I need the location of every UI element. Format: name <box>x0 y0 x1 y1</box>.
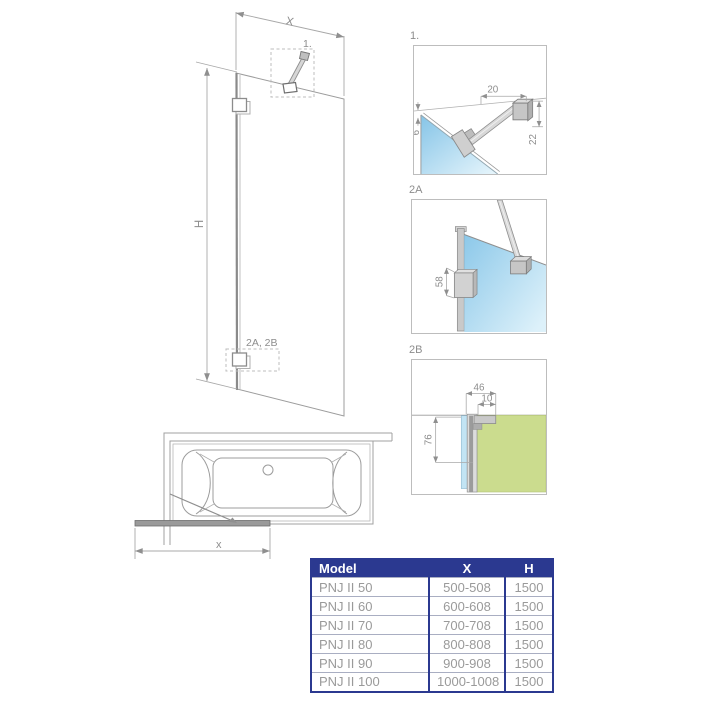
elevation-glass-panel <box>236 73 344 416</box>
plan-width-label: x <box>216 539 222 551</box>
bathtub-ledge <box>477 415 546 492</box>
model-cell: PNJ II 100 <box>311 673 429 692</box>
model-cell: PNJ II 70 <box>311 616 429 635</box>
table-row: PNJ II 100 1000-1008 1500 <box>311 673 553 692</box>
detail-2a-box: 58 <box>411 199 547 334</box>
detail-2b-box: 46 10 76 <box>411 359 547 495</box>
model-spec-table: Model X H PNJ II 50 500-508 1500 PNJ II … <box>310 558 554 693</box>
dim-76-label: 76 <box>424 434 435 445</box>
drain-icon <box>263 465 273 475</box>
dim-20-label: 20 <box>487 84 498 95</box>
h-cell: 1500 <box>505 616 553 635</box>
table-row: PNJ II 70 700-708 1500 <box>311 616 553 635</box>
support-arm <box>283 52 310 94</box>
model-cell: PNJ II 60 <box>311 597 429 616</box>
detail-2b-drawing: 46 10 76 <box>412 360 546 494</box>
detail-1-box: 20 22 6 <box>413 45 547 175</box>
dim-6-label: 6 <box>414 129 422 135</box>
dim-22-label: 22 <box>528 134 539 145</box>
x-cell: 900-908 <box>429 654 505 673</box>
column-header-x: X <box>429 559 505 578</box>
screen-panel-plan <box>135 521 270 527</box>
model-cell: PNJ II 80 <box>311 635 429 654</box>
detail-1-title: 1. <box>410 30 419 42</box>
dim-58-label: 58 <box>435 276 446 287</box>
wall-bracket <box>513 99 533 121</box>
model-cell: PNJ II 90 <box>311 654 429 673</box>
column-header-model: Model <box>311 559 429 578</box>
detail-2b-title: 2B <box>409 344 422 356</box>
x-cell: 600-608 <box>429 597 505 616</box>
detail-2-callout-label: 2A, 2B <box>246 337 278 349</box>
plan-width-dimension <box>135 528 270 559</box>
bathtub-plan-view <box>164 433 392 545</box>
detail-1-callout-label: 1. <box>303 38 312 50</box>
h-cell: 1500 <box>505 597 553 616</box>
detail-1-drawing: 20 22 6 <box>414 46 546 174</box>
dim-10-label: 10 <box>481 393 492 404</box>
technical-drawing-page: X H 1. 2A, 2B <box>0 0 720 720</box>
x-cell: 1000-1008 <box>429 673 505 692</box>
x-cell: 700-708 <box>429 616 505 635</box>
h-cell: 1500 <box>505 578 553 597</box>
support-arm <box>469 105 518 144</box>
table-row: PNJ II 60 600-608 1500 <box>311 597 553 616</box>
dim-10 <box>478 404 496 415</box>
h-cell: 1500 <box>505 635 553 654</box>
x-cell: 800-808 <box>429 635 505 654</box>
detail-2a-title: 2A <box>409 184 422 196</box>
table-row: PNJ II 80 800-808 1500 <box>311 635 553 654</box>
arm-clamp <box>511 257 532 274</box>
table-row: PNJ II 50 500-508 1500 <box>311 578 553 597</box>
glass-section <box>461 416 467 489</box>
elevation-height-label: H <box>194 220 206 228</box>
elevation-width-label: X <box>285 15 295 28</box>
x-cell: 500-508 <box>429 578 505 597</box>
detail-2a-drawing: 58 <box>412 200 546 333</box>
column-header-h: H <box>505 559 553 578</box>
table-header-row: Model X H <box>311 559 553 578</box>
table-row: PNJ II 90 900-908 1500 <box>311 654 553 673</box>
h-cell: 1500 <box>505 673 553 692</box>
dim-46-label: 46 <box>474 383 485 394</box>
h-cell: 1500 <box>505 654 553 673</box>
wall-profile <box>237 73 238 390</box>
model-cell: PNJ II 50 <box>311 578 429 597</box>
glass-bracket <box>454 269 477 297</box>
dim-58 <box>446 268 454 298</box>
